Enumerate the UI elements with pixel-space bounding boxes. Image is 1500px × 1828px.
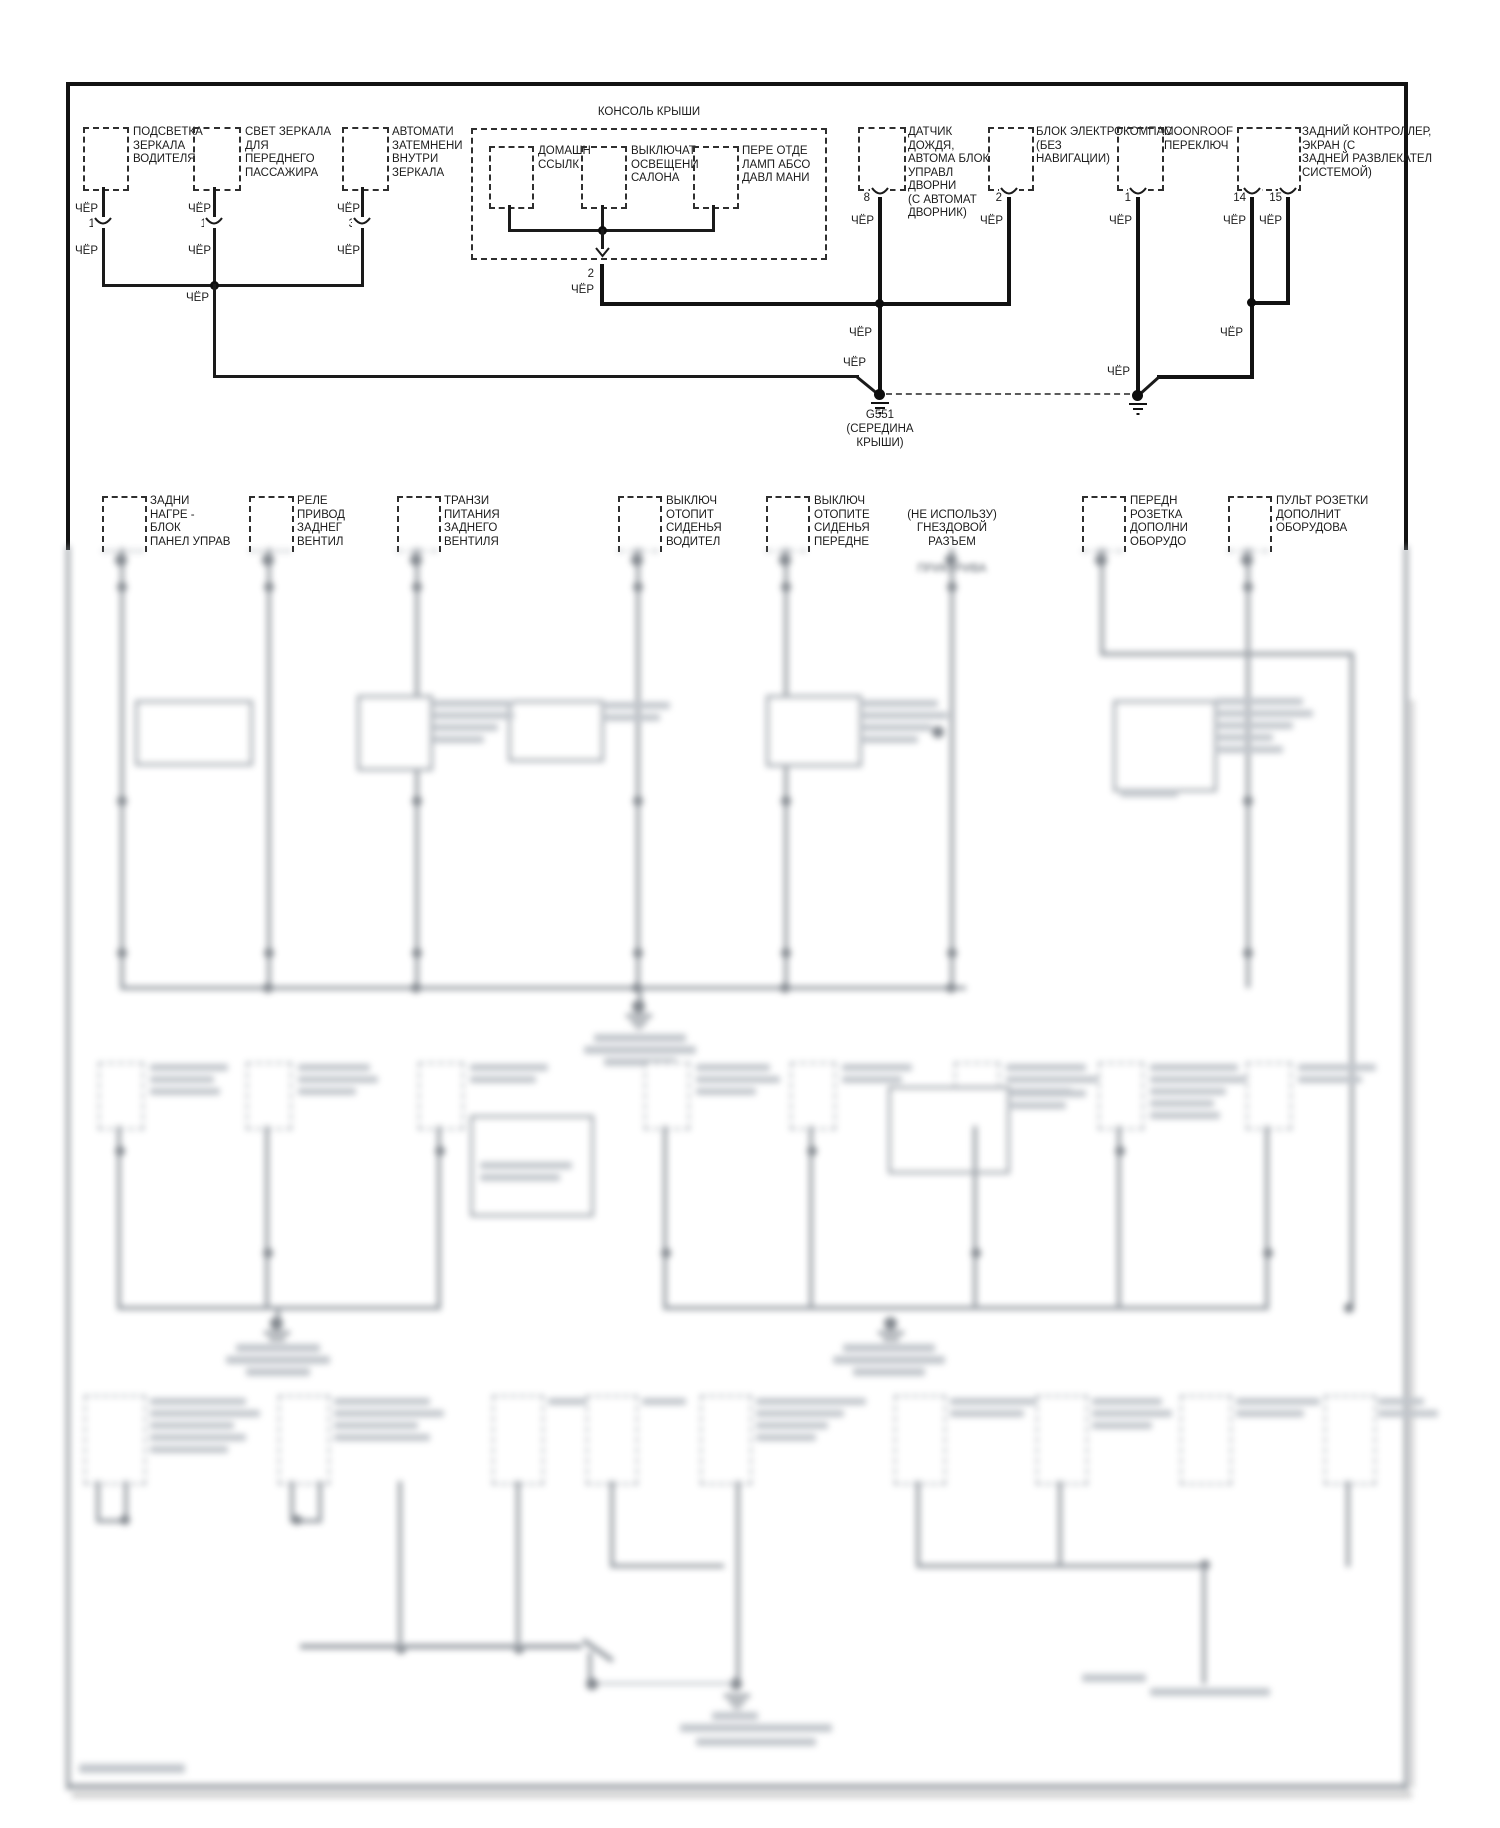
blurred-shape — [150, 1446, 228, 1453]
ground-id-label: G551 — [820, 409, 940, 423]
blurred-shape — [1150, 1076, 1248, 1083]
blurred-shape — [632, 983, 642, 993]
wiring-diagram-page: ПОДСВЕТКА ЗЕРКАЛА ВОДИТЕЛЯ СВЕТ ЗЕРКАЛА … — [0, 0, 1500, 1828]
blurred-shape — [1100, 548, 1104, 654]
blurred-shape — [290, 1481, 294, 1521]
blurred-shape — [1180, 1395, 1232, 1485]
wire-color-label: ЧЁР — [75, 203, 98, 217]
wire-color-label: ЧЁР — [1098, 215, 1132, 229]
blurred-shape — [516, 1481, 520, 1647]
blurred-shape — [1100, 652, 1354, 656]
blurred-shape — [756, 1434, 816, 1441]
ground-link-dashed — [886, 393, 1130, 395]
blurred-shape — [790, 1062, 836, 1130]
blurred-shape — [860, 736, 918, 743]
frame-top-edge — [66, 82, 1408, 86]
connector-icon — [93, 217, 113, 228]
wire-color-label: ЧЁР — [1209, 327, 1243, 341]
blurred-shape — [1082, 1674, 1146, 1682]
blurred-shape — [663, 1306, 1269, 1310]
blurred-shape — [334, 1434, 430, 1441]
blurred-shape — [318, 1481, 322, 1521]
blurred-shape — [290, 1519, 322, 1523]
wire — [1286, 197, 1290, 305]
front-accessory-socket-label: ПЕРЕДН РОЗЕТКА ДОПОЛНИ ОБОРУДО — [1130, 495, 1230, 549]
rear-heater-panel-box — [102, 496, 147, 552]
blurred-shape — [150, 1088, 220, 1095]
blurred-shape — [1215, 722, 1293, 729]
rear-controller-label: ЗАДНИЙ КОНТРОЛЛЕР, ЭКРАН (С ЗАДНЕЙ РАЗВЛ… — [1302, 126, 1452, 180]
blurred-shape — [582, 1638, 614, 1663]
blurred-shape — [117, 796, 127, 806]
blurred-shape — [696, 1064, 770, 1071]
wire — [1250, 197, 1254, 378]
blurred-shape — [950, 1410, 1024, 1417]
blurred-shape — [632, 1000, 645, 1013]
blurred-shape — [84, 1395, 146, 1485]
connector-icon — [204, 217, 224, 228]
rain-sensor-box — [858, 127, 906, 191]
pin-number: 8 — [848, 192, 870, 206]
pin-number: 1 — [73, 218, 95, 232]
blurred-shape — [1120, 790, 1178, 797]
homelink-box — [489, 146, 534, 209]
ground-location-label: (СЕРЕДИНА КРЫШИ) — [820, 423, 940, 450]
blurred-shape — [843, 1344, 935, 1352]
wire-color-label: ЧЁР — [969, 215, 1003, 229]
blurred-shape — [117, 582, 127, 592]
blurred-shape — [432, 724, 498, 731]
blurred-shape — [696, 1738, 816, 1746]
compass-module-box — [988, 127, 1034, 191]
blurred-shape — [894, 1395, 946, 1485]
blurred-shape — [265, 1126, 269, 1308]
blurred-shape — [412, 796, 422, 806]
blurred-shape — [1263, 1248, 1273, 1258]
blurred-shape — [492, 1395, 544, 1485]
blurred-shape — [120, 1515, 130, 1525]
blurred-shape — [1036, 1395, 1088, 1485]
blurred-shape — [809, 1126, 813, 1308]
blurred-shape — [262, 554, 274, 566]
blurred-shape — [236, 1344, 320, 1352]
blurred-shape — [733, 1706, 741, 1709]
wire — [712, 205, 715, 232]
wire-color-label: ЧЁР — [1212, 215, 1246, 229]
pin-number: 15 — [1258, 192, 1282, 206]
blurred-shape — [470, 1064, 548, 1071]
blurred-shape — [633, 582, 643, 592]
blurred-shape — [756, 1398, 866, 1405]
blurred-shape — [1346, 1481, 1350, 1567]
blurred-shape — [150, 1434, 246, 1441]
blurred-shape — [226, 1356, 330, 1364]
blurred-shape — [610, 1564, 724, 1568]
blurred-shape — [267, 548, 271, 988]
blurred-shape — [1215, 710, 1313, 717]
blurred-shape — [432, 736, 484, 743]
blurred-shape — [1006, 1076, 1098, 1083]
blurred-shape — [79, 1764, 185, 1773]
blurred-shape — [357, 695, 433, 771]
blurred-shape — [916, 1481, 920, 1567]
blurred-shape — [1298, 1076, 1362, 1083]
arrow-down-icon — [594, 246, 611, 258]
blurred-shape — [954, 1062, 1000, 1130]
blurred-shape — [415, 548, 419, 988]
blurred-shape — [1092, 1422, 1152, 1429]
blurred-shape — [626, 1014, 652, 1018]
driver-seat-heater-switch-label: ВЫКЛЮЧ ОТОПИТ СИДЕНЬЯ ВОДИТЕЛ — [666, 495, 766, 549]
blurred-shape — [1092, 1410, 1172, 1417]
blurred-shape — [418, 1062, 464, 1130]
blurred-shape — [292, 1515, 302, 1525]
pin-number: 14 — [1222, 192, 1246, 206]
blurred-shape — [1150, 1064, 1238, 1071]
driver-mirror-lamp-box — [83, 127, 129, 191]
blurred-shape — [1202, 1564, 1206, 1684]
wire-bus — [508, 229, 715, 232]
driver-seat-heater-switch-box — [618, 496, 662, 552]
blurred-shape — [120, 548, 124, 988]
blurred-shape — [300, 1644, 582, 1649]
blurred-shape — [1113, 700, 1217, 792]
blurred-shape — [781, 796, 791, 806]
blurred-shape — [1008, 1102, 1066, 1109]
blurred-shape — [842, 1076, 902, 1083]
wire-color-label: ЧЁР — [75, 245, 98, 259]
blurred-shape — [780, 983, 790, 993]
blurred-shape — [1150, 1688, 1270, 1696]
blurred-shape — [584, 1046, 696, 1054]
blurred-shape — [1236, 1398, 1320, 1405]
blurred-shape — [1150, 1100, 1214, 1107]
blurred-shape — [766, 695, 862, 767]
lighter-socket-label-text: (НЕ ИСПОЛЬЗУ) ГНЕЗДОВОЙ РАЗЪЕМ — [878, 509, 1026, 550]
blurred-shape — [1344, 1303, 1354, 1313]
blurred-shape — [298, 1076, 378, 1083]
blurred-shape — [96, 1481, 100, 1521]
blurred-shape — [712, 1712, 758, 1720]
wire-color-label: ЧЁР — [832, 357, 866, 371]
blurred-shape — [736, 1481, 740, 1681]
blurred-shape — [298, 1064, 370, 1071]
passenger-mirror-lamp-label: СВЕТ ЗЕРКАЛА ДЛЯ ПЕРЕДНЕГО ПАССАЖИРА — [245, 126, 355, 180]
blurred-shape — [946, 983, 956, 993]
blurred-shape — [602, 714, 660, 721]
blurred-shape — [860, 700, 938, 707]
wire-color-label: ЧЁР — [840, 215, 874, 229]
lighter-socket-label: (НЕ ИСПОЛЬЗУ) ГНЕЗДОВОЙ РАЗЪЕМ ПРИКУРИВА — [878, 495, 1026, 590]
rear-blower-transistor-box — [397, 496, 441, 552]
blurred-shape — [135, 700, 253, 766]
blurred-shape — [334, 1422, 418, 1429]
blurred-shape — [278, 1395, 330, 1485]
blurred-shape — [470, 1115, 594, 1217]
blurred-shape — [724, 1694, 750, 1698]
blurred-shape — [1241, 554, 1253, 566]
blurred-shape — [878, 1331, 904, 1335]
blurred-shape — [115, 1146, 125, 1156]
blurred-shape — [269, 1337, 285, 1341]
blurred-shape — [264, 948, 274, 958]
blurred-shape — [115, 554, 127, 566]
blurred-shape — [1246, 548, 1250, 988]
blurred-shape — [610, 1481, 614, 1567]
wire-bus — [1250, 301, 1290, 305]
blurred-shape — [263, 983, 273, 993]
blurred-shape — [1410, 700, 1414, 1788]
blurred-shape — [508, 700, 604, 762]
blurred-shape — [1095, 554, 1107, 566]
blurred-shape — [642, 1398, 686, 1405]
blurred-shape — [120, 986, 966, 990]
blurred-shape — [1008, 1090, 1086, 1097]
blurred-shape — [1265, 1126, 1269, 1308]
blurred-shape — [884, 1317, 897, 1330]
blurred-shape — [635, 1026, 643, 1029]
blurred-shape — [860, 724, 932, 731]
blurred-shape — [633, 948, 643, 958]
wire — [213, 284, 216, 378]
wire — [600, 264, 604, 306]
ground-dot — [874, 389, 885, 400]
pin-number: 1 — [1109, 192, 1131, 206]
blurred-shape — [246, 1368, 310, 1376]
rear-blower-relay-label: РЕЛЕ ПРИВОД ЗАДНЕГ ВЕНТИЛ — [297, 495, 397, 549]
wire-bus — [102, 284, 364, 287]
blurred-shape — [781, 582, 791, 592]
blurred-shape — [124, 1481, 128, 1521]
ground-icon — [1126, 401, 1150, 417]
blurred-shape — [412, 582, 422, 592]
rear-controller-box — [1237, 127, 1301, 191]
blurred-diagram-region — [0, 0, 1500, 1828]
blurred-shape — [947, 948, 957, 958]
pin-number: 2 — [980, 192, 1002, 206]
wire-color-label: ЧЁР — [188, 245, 211, 259]
blurred-shape — [756, 1410, 844, 1417]
blurred-shape — [480, 1162, 572, 1169]
blurred-shape — [602, 702, 670, 709]
blurred-shape — [1215, 746, 1283, 753]
ground-dot — [1132, 390, 1143, 401]
auto-dim-mirror-box — [342, 127, 389, 191]
blurred-shape — [264, 582, 274, 592]
blurred-shape — [150, 1064, 228, 1071]
blurred-shape — [1006, 1088, 1072, 1095]
frame-left-edge — [66, 82, 70, 550]
connector-icon — [352, 217, 372, 228]
blurred-shape — [1058, 1481, 1062, 1567]
blurred-shape — [950, 548, 954, 988]
rear-accessory-socket-box — [1228, 496, 1272, 552]
blurred-shape — [150, 1410, 260, 1417]
blurred-shape — [98, 1062, 144, 1130]
blurred-shape — [638, 990, 642, 1002]
wire — [361, 187, 364, 285]
blurred-shape — [971, 1248, 981, 1258]
wire-color-label: ЧЁР — [838, 327, 872, 341]
blurred-shape — [437, 1126, 441, 1308]
blurred-shape — [644, 1062, 690, 1130]
blurred-shape — [435, 1146, 445, 1156]
wire-bus — [1157, 375, 1254, 379]
blurred-shape — [598, 1682, 734, 1685]
front-seat-heater-switch-box — [766, 496, 810, 552]
blurred-shape — [150, 1422, 234, 1429]
blurred-shape — [842, 1064, 912, 1071]
wire-bus — [213, 375, 859, 378]
blurred-shape — [66, 546, 70, 1790]
blurred-shape — [514, 1644, 524, 1654]
blurred-shape — [1350, 652, 1354, 1308]
blurred-shape — [96, 1519, 128, 1523]
rear-heater-panel-label: ЗАДНИ НАГРЕ - БЛОК ПАНЕЛ УПРАВ — [150, 495, 260, 549]
blurred-shape — [604, 1058, 676, 1066]
pin-number: 2 — [572, 268, 594, 282]
blurred-shape — [1098, 1062, 1144, 1130]
rear-blower-transistor-label: ТРАНЗИ ПИТАНИЯ ЗАДНЕГО ВЕНТИЛЯ — [444, 495, 544, 549]
blurred-shape — [1246, 1062, 1292, 1130]
blurred-shape — [117, 1306, 441, 1310]
blurred-shape — [883, 1337, 899, 1341]
blurred-shape — [1243, 948, 1253, 958]
wire — [102, 187, 105, 285]
blurred-shape — [264, 1331, 290, 1335]
blurred-shape — [1215, 734, 1273, 741]
blurred-shape — [696, 1088, 756, 1095]
blurred-shape — [779, 554, 791, 566]
blurred-shape — [661, 1248, 671, 1258]
blurred-shape — [470, 1076, 536, 1083]
blurred-shape — [276, 1310, 280, 1318]
blurred-shape — [1236, 1410, 1304, 1417]
blurred-shape — [586, 1395, 638, 1485]
blurred-shape — [888, 1086, 1010, 1174]
blurred-shape — [631, 1020, 647, 1024]
moonroof-switch-box — [1117, 127, 1164, 191]
wire — [1136, 197, 1140, 391]
blurred-shape — [663, 1126, 667, 1308]
blurred-shape — [594, 1034, 686, 1042]
blurred-shape — [756, 1422, 828, 1429]
blurred-shape — [246, 1062, 292, 1130]
blurred-shape — [1404, 546, 1408, 1790]
blurred-shape — [586, 1678, 598, 1690]
blurred-shape — [66, 1784, 1408, 1789]
wire — [508, 205, 511, 232]
wire-color-label: ЧЁР — [186, 292, 209, 306]
blurred-shape — [548, 1398, 604, 1405]
blurred-shape — [1215, 698, 1303, 705]
blurred-shape — [117, 1126, 121, 1308]
blurred-shape — [263, 1248, 273, 1258]
blurred-shape — [72, 1792, 1412, 1798]
wire — [1007, 197, 1011, 305]
blurred-shape — [396, 1644, 406, 1654]
blurred-shape — [298, 1088, 356, 1095]
wire-bus — [602, 302, 1011, 306]
blurred-shape — [150, 1398, 246, 1405]
blurred-shape — [1150, 1112, 1220, 1119]
junction-dot — [1247, 298, 1256, 307]
blurred-shape — [916, 1564, 1206, 1568]
blurred-shape — [1378, 1410, 1438, 1417]
blurred-shape — [1115, 1146, 1125, 1156]
blurred-shape — [730, 1678, 742, 1690]
blurred-shape — [696, 1076, 780, 1083]
blurred-shape — [860, 712, 948, 719]
wire-color-label: ЧЁР — [337, 245, 360, 259]
lighter-socket-label-blurred: ПРИКУРИВА — [878, 563, 1026, 577]
blurred-shape — [1324, 1395, 1376, 1485]
blurred-shape — [334, 1410, 444, 1417]
wire-color-label: ЧЁР — [188, 203, 211, 217]
blurred-shape — [334, 1398, 430, 1405]
blurred-shape — [729, 1700, 745, 1704]
blurred-shape — [480, 1174, 560, 1181]
blurred-shape — [807, 1146, 817, 1156]
blurred-shape — [700, 1395, 752, 1485]
blurred-shape — [636, 548, 640, 988]
blurred-shape — [1378, 1398, 1424, 1405]
blurred-shape — [432, 712, 514, 719]
blurred-shape — [1117, 1126, 1121, 1308]
blurred-shape — [853, 1368, 925, 1376]
wire-color-label: ЧЁР — [337, 203, 360, 217]
rear-accessory-socket-label: ПУЛЬТ РОЗЕТКИ ДОПОЛНИТ ОБОРУДОВА — [1276, 495, 1396, 536]
roof-console-title: КОНСОЛЬ КРЫШИ — [549, 106, 749, 120]
blurred-shape — [784, 548, 788, 988]
blurred-shape — [270, 1317, 283, 1330]
cabin-light-switch-box — [581, 146, 627, 209]
junction-dot — [875, 299, 884, 308]
blurred-shape — [950, 1398, 1042, 1405]
blurred-shape — [410, 554, 422, 566]
blurred-shape — [1200, 1560, 1210, 1570]
blurred-shape — [973, 1126, 977, 1308]
blurred-shape — [412, 948, 422, 958]
blurred-shape — [117, 948, 127, 958]
blurred-shape — [1006, 1064, 1086, 1071]
front-dome-lamp-box — [693, 146, 739, 209]
front-dome-lamp-label: ПЕРЕ ОТДЕ ЛАМП АБСО ДАВЛ МАНИ — [742, 145, 837, 186]
blurred-shape — [680, 1724, 832, 1732]
blurred-shape — [781, 948, 791, 958]
blurred-shape — [1243, 582, 1253, 592]
wire-color-label: ЧЁР — [1096, 366, 1130, 380]
wire — [213, 187, 216, 285]
blurred-shape — [432, 700, 514, 707]
blurred-shape — [588, 1652, 592, 1680]
wire — [878, 197, 882, 393]
blurred-shape — [932, 726, 944, 738]
blurred-shape — [1298, 1064, 1376, 1071]
wire-color-label: ЧЁР — [560, 284, 594, 298]
front-accessory-socket-box — [1082, 496, 1126, 552]
passenger-mirror-lamp-box — [193, 127, 241, 191]
blurred-shape — [633, 796, 643, 806]
blurred-shape — [150, 1076, 214, 1083]
blurred-shape — [398, 1481, 402, 1647]
blurred-shape — [411, 983, 421, 993]
blurred-shape — [1243, 796, 1253, 806]
blurred-shape — [631, 554, 643, 566]
blurred-shape — [1150, 1088, 1226, 1095]
rear-blower-relay-box — [249, 496, 294, 552]
blurred-shape — [1092, 1398, 1162, 1405]
